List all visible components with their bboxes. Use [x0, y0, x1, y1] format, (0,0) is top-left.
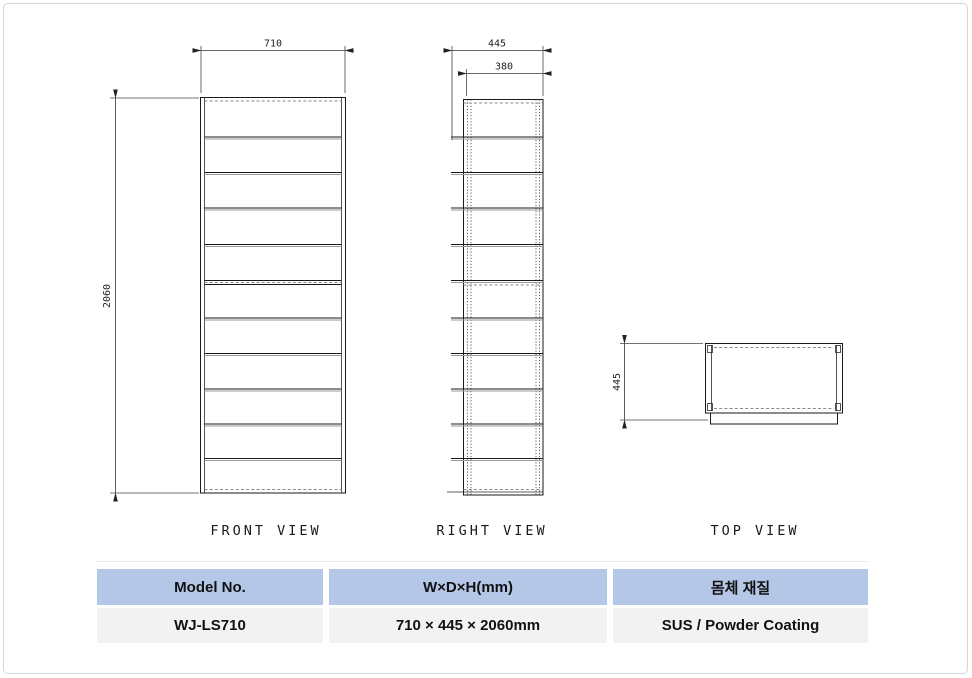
spec-header-body-material: 몸체 재질 [613, 569, 868, 605]
front-width-dim-label: 710 [264, 39, 282, 50]
spec-table-data-row: WJ-LS710 710 × 445 × 2060mm SUS / Powder… [97, 608, 868, 643]
right-inner-depth-dim-label: 380 [495, 62, 513, 73]
front-shelf-lines [205, 137, 342, 461]
front-width-dimension: 710 [201, 39, 345, 94]
front-view-title: FRONT VIEW [210, 523, 321, 539]
top-depth-dimension: 445 [612, 344, 708, 421]
spec-header-model-no: Model No. [97, 569, 323, 605]
right-inner-depth-dimension: 380 [467, 62, 544, 97]
top-depth-dim-label: 445 [612, 373, 623, 391]
right-outer-depth-dim-label: 445 [488, 39, 506, 50]
front-height-dim-label: 2060 [102, 284, 113, 308]
spec-value-dimensions: 710 × 445 × 2060mm [329, 608, 607, 643]
spec-header-dimensions: W×D×H(mm) [329, 569, 607, 605]
right-outer-depth-dimension: 445 [452, 39, 543, 141]
right-view-title: RIGHT VIEW [436, 523, 547, 539]
right-shelf-lines [451, 137, 543, 461]
page: 710 2060 FRONT VIEW [0, 0, 972, 678]
top-view-title: TOP VIEW [710, 523, 799, 539]
spec-table: Model No. W×D×H(mm) 몸체 재질 WJ-LS710 710 ×… [97, 561, 868, 643]
front-height-dimension: 2060 [102, 98, 199, 493]
front-view: 710 2060 FRONT VIEW [102, 39, 346, 540]
spec-value-model-no: WJ-LS710 [97, 608, 323, 643]
right-view: 445 380 RIGHT VIEW [436, 39, 547, 540]
spec-value-body-material: SUS / Powder Coating [613, 608, 868, 643]
spec-table-header-row: Model No. W×D×H(mm) 몸체 재질 [97, 569, 868, 605]
technical-drawing: 710 2060 FRONT VIEW [0, 0, 972, 560]
top-view: 445 TOP VIEW [612, 344, 843, 540]
